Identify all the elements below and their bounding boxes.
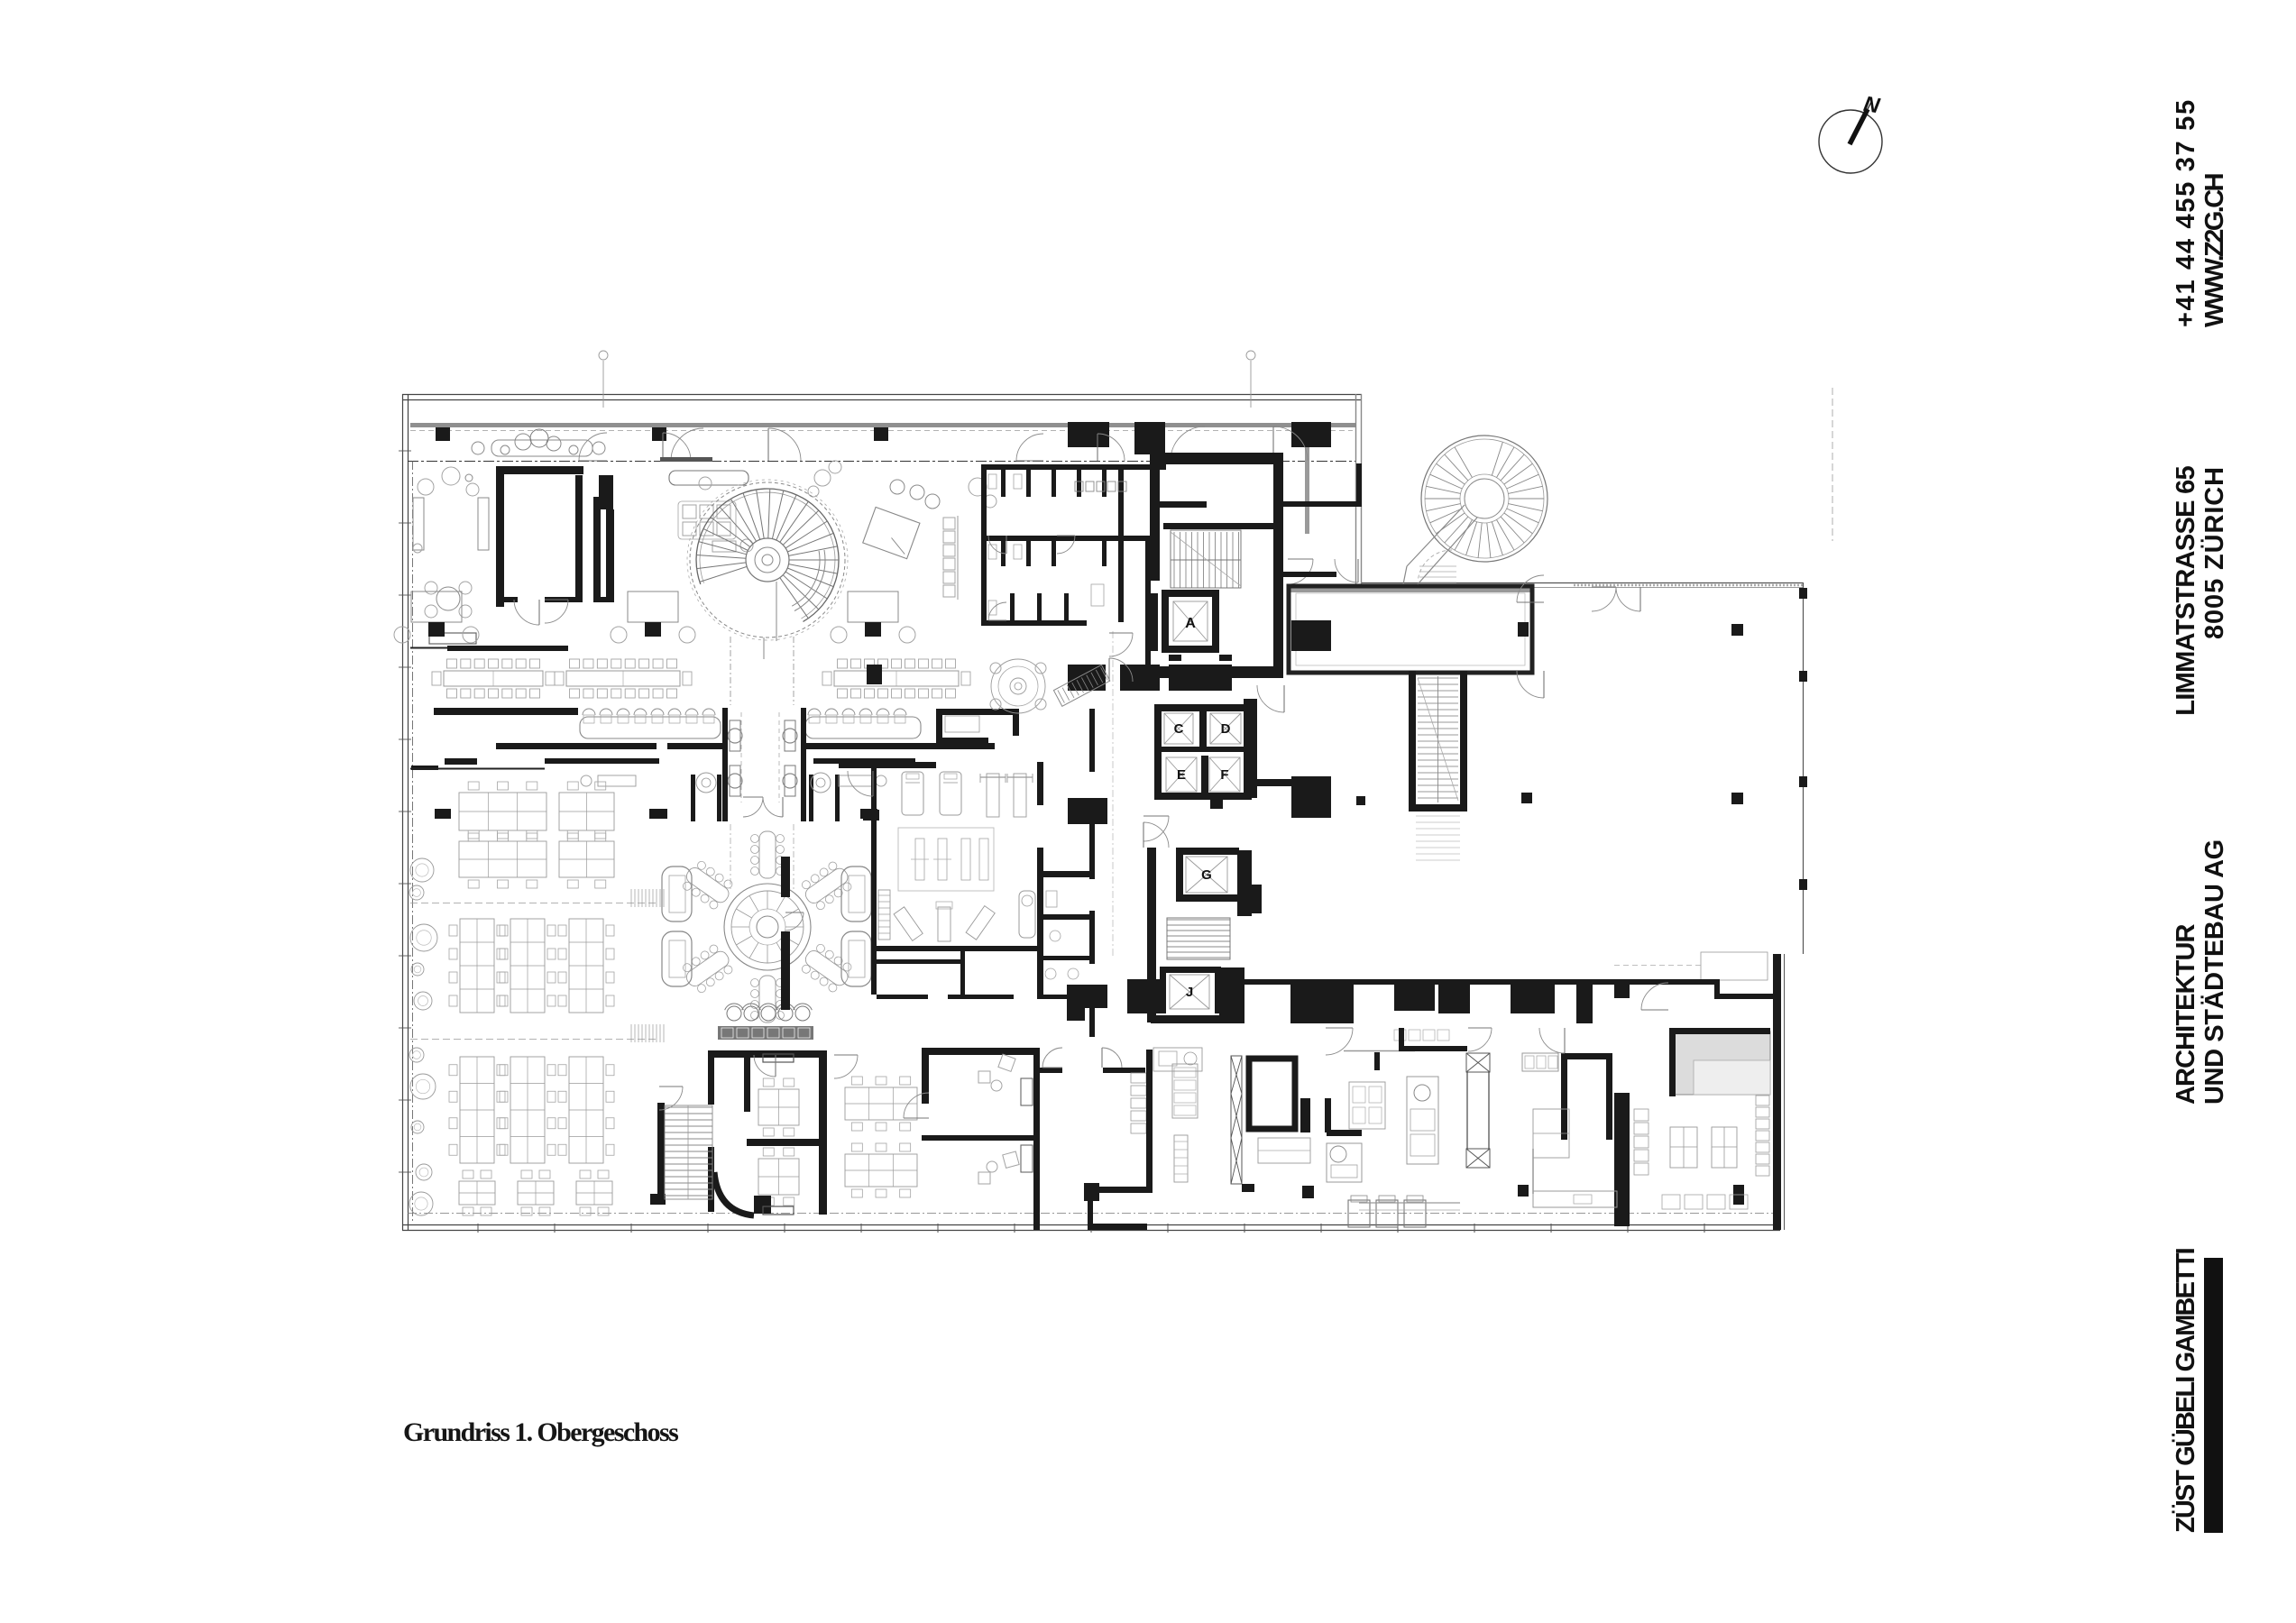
- svg-text:WWW.Z2G.CH: WWW.Z2G.CH: [2200, 174, 2229, 327]
- svg-text:J: J: [1186, 985, 1193, 1000]
- svg-text:8005 ZÜRICH: 8005 ZÜRICH: [2200, 466, 2229, 639]
- svg-text:A: A: [1185, 616, 1196, 631]
- svg-text:G: G: [1201, 867, 1212, 883]
- svg-text:UND STÄDTEBAU AG: UND STÄDTEBAU AG: [2200, 839, 2229, 1105]
- svg-text:+41 44 455 37 55: +41 44 455 37 55: [2172, 98, 2200, 327]
- svg-text:ARCHITEKTUR: ARCHITEKTUR: [2172, 924, 2200, 1105]
- svg-text:F: F: [1220, 767, 1228, 783]
- svg-text:Grundriss 1. Obergeschoss: Grundriss 1. Obergeschoss: [403, 1417, 678, 1447]
- svg-text:ZÜST GÜBELI GAMBETTI: ZÜST GÜBELI GAMBETTI: [2171, 1248, 2200, 1533]
- svg-text:D: D: [1221, 721, 1231, 737]
- svg-text:C: C: [1174, 721, 1184, 737]
- svg-text:LIMMATSTRASSE 65: LIMMATSTRASSE 65: [2172, 465, 2200, 715]
- svg-text:E: E: [1177, 767, 1186, 783]
